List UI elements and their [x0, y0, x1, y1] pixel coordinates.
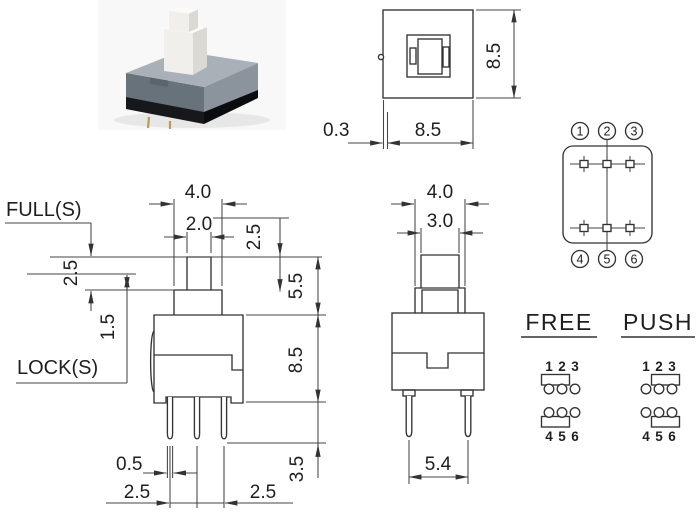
pin-3-badge-label: 3: [631, 125, 638, 139]
pin-1-badge-label: 1: [577, 125, 584, 139]
side-stem-outline: [421, 255, 459, 288]
free-contact-2: [557, 384, 567, 394]
front-stem-width-dim: 2.0: [186, 214, 212, 235]
push-contact-2: [654, 384, 664, 394]
side-pin-left: [406, 396, 412, 437]
front-lock-travel-dim: 1.5: [98, 314, 119, 340]
front-pin-left: [167, 397, 172, 439]
push-state-diagram: PUSH 1 2 3 4 5 6: [621, 309, 695, 444]
push-state-title: PUSH: [623, 309, 693, 335]
push-pin1-label: 1: [642, 359, 650, 374]
side-stem-width-dim: 3.0: [427, 211, 453, 232]
front-body-step-line: [154, 355, 243, 370]
free-contact-1: [544, 384, 554, 394]
switch-photo: [98, 0, 286, 130]
front-view-drawing: FULL(S) LOCK(S) 4.0 2.0 2.5 1.5 2.5 5.5 …: [5, 182, 326, 508]
photo-plunger-front: [164, 29, 193, 75]
free-contact-4: [544, 408, 554, 418]
side-cap-width-dim: 4.0: [427, 182, 453, 203]
free-state-title: FREE: [525, 309, 592, 335]
pin-2-badge-label: 2: [604, 125, 611, 139]
front-body-height-dim: 8.5: [286, 347, 307, 373]
photo-pin-lead: [148, 117, 149, 128]
pin-5-badge-label: 5: [604, 253, 611, 267]
side-body-outline: [392, 313, 484, 390]
push-pin2-label: 2: [655, 359, 663, 374]
free-state-diagram: FREE 1 2 3 4 5 6: [521, 309, 597, 444]
free-pin3-label: 3: [571, 359, 579, 374]
push-pin6-label: 6: [668, 429, 676, 444]
push-pin4-label: 4: [642, 429, 650, 444]
push-contact-1: [641, 384, 651, 394]
top-view-side-bump: [378, 54, 383, 59]
side-view-drawing: 4.0 3.0 5.4: [391, 182, 489, 484]
front-pin-width-dim: 0.5: [116, 454, 142, 475]
top-view-width-dim: 8.5: [415, 120, 441, 141]
free-pin5-label: 5: [558, 429, 566, 444]
front-pin-right: [221, 397, 226, 439]
free-bottom-connector-bar: [542, 417, 570, 428]
front-pitch-right-dim: 2.5: [250, 482, 276, 503]
switch-datasheet-drawing: 8.5 0.3 8.5 1: [0, 0, 700, 520]
push-contact-3: [667, 384, 677, 394]
top-view-right-slot: [443, 47, 449, 67]
datasheet-drawing-page: 8.5 0.3 8.5 1: [0, 0, 700, 520]
top-view-drawing: 8.5 0.3 8.5: [323, 10, 521, 149]
photo-plunger-tip-front: [169, 11, 189, 32]
side-dimension-lines: [391, 199, 489, 484]
free-pin6-label: 6: [571, 429, 579, 444]
front-body-outline: [154, 315, 243, 403]
pin-layout-diagram: 1 2 3 4 5 6: [563, 123, 652, 268]
side-pin-span-dim: 5.4: [425, 454, 452, 475]
top-view-body-outline: [383, 10, 473, 98]
free-pin1-label: 1: [545, 359, 553, 374]
free-pin4-label: 4: [545, 429, 553, 444]
front-stem-height-dim: 2.5: [244, 224, 265, 250]
side-pin-post-left: [403, 390, 415, 396]
front-plunger-height-dim: 5.5: [286, 273, 307, 299]
front-pin-center: [194, 397, 199, 439]
push-contact-6: [667, 408, 677, 418]
front-cap-outline: [174, 290, 222, 315]
full-position-label: FULL(S): [6, 199, 82, 221]
push-contact-4: [641, 408, 651, 418]
side-pin-post-right: [461, 390, 473, 396]
free-pin2-label: 2: [558, 359, 566, 374]
push-contact-5: [654, 408, 664, 418]
push-pin3-label: 3: [668, 359, 676, 374]
lock-position-label: LOCK(S): [17, 357, 98, 379]
free-top-connector-bar: [542, 375, 570, 386]
side-body-notch: [392, 353, 484, 368]
free-contact-5: [557, 408, 567, 418]
top-view-plunger-center: [418, 39, 442, 74]
side-cap-inner: [422, 290, 458, 313]
pin-4-badge-label: 4: [577, 253, 584, 267]
front-pitch-left-dim: 2.5: [124, 482, 150, 503]
front-travel-dim: 2.5: [61, 260, 82, 286]
free-contact-6: [570, 408, 580, 418]
top-view-left-slot: [410, 48, 416, 64]
photo-plunger-side: [193, 27, 207, 75]
free-contact-3: [570, 384, 580, 394]
front-stem-outline: [187, 257, 211, 290]
front-dimension-lines: [5, 199, 326, 508]
pin-6-badge-label: 6: [631, 253, 638, 267]
push-pin5-label: 5: [655, 429, 663, 444]
front-pin-length-dim: 3.5: [287, 456, 308, 482]
front-cap-width-dim: 4.0: [185, 182, 211, 203]
push-top-connector-bar: [652, 375, 680, 386]
side-pin-right: [465, 396, 471, 437]
top-view-offset-dim: 0.3: [323, 120, 349, 141]
push-bottom-connector-bar: [652, 417, 680, 428]
top-view-height-dim: 8.5: [484, 43, 505, 69]
